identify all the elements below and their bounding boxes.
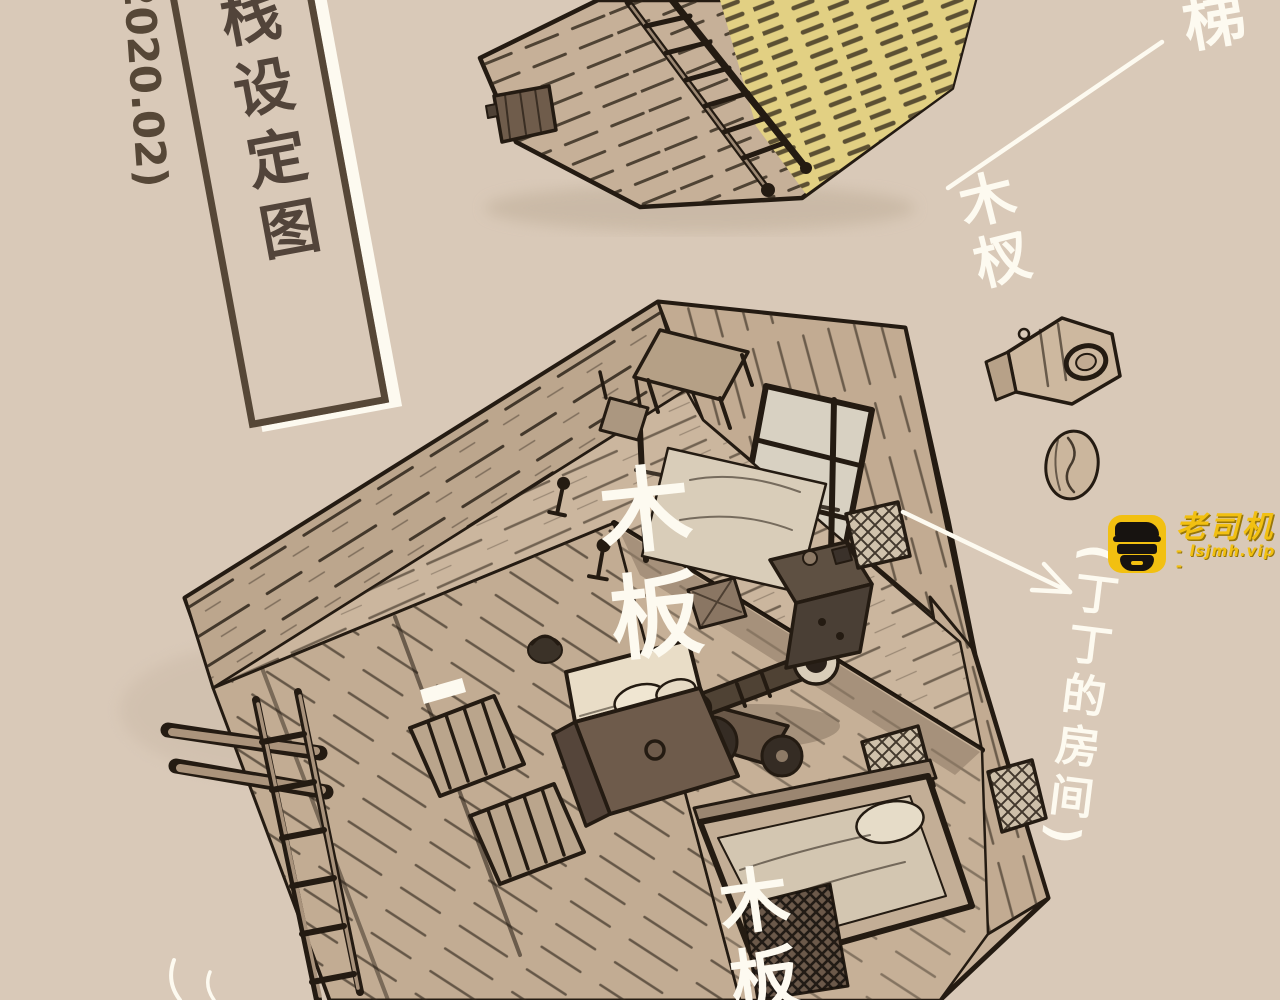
walnut-sketch (1042, 428, 1103, 503)
squiggle-1 (171, 960, 180, 1000)
cap-icon (1115, 522, 1159, 537)
leader-line (948, 42, 1162, 188)
watermark-text: 老司机 - lsjmh.vip - (1176, 512, 1280, 575)
bracket-part-sketch (986, 318, 1120, 404)
site-url: - lsjmh.vip - (1176, 544, 1280, 576)
upper-structure-sketch (480, 0, 975, 232)
concept-art-page: 客栈设定图 (2020.02) 楼梯 木杈 木板 木板 (丁丁的房间) 老司机 … (0, 0, 1280, 1000)
mouth-icon (1131, 561, 1143, 565)
driver-avatar-icon (1108, 515, 1166, 573)
squiggle-2 (208, 972, 214, 1000)
sunglasses-icon (1117, 544, 1157, 554)
label-wood-plank: 木板 (566, 456, 720, 681)
pot-sketch (528, 636, 562, 663)
basket-sketch (846, 502, 910, 568)
barrel-sketch (486, 86, 556, 142)
watermark: 老司机 - lsjmh.vip - (1108, 512, 1280, 575)
cap-brim-icon (1113, 536, 1161, 542)
brand-name: 老司机 (1176, 512, 1280, 544)
